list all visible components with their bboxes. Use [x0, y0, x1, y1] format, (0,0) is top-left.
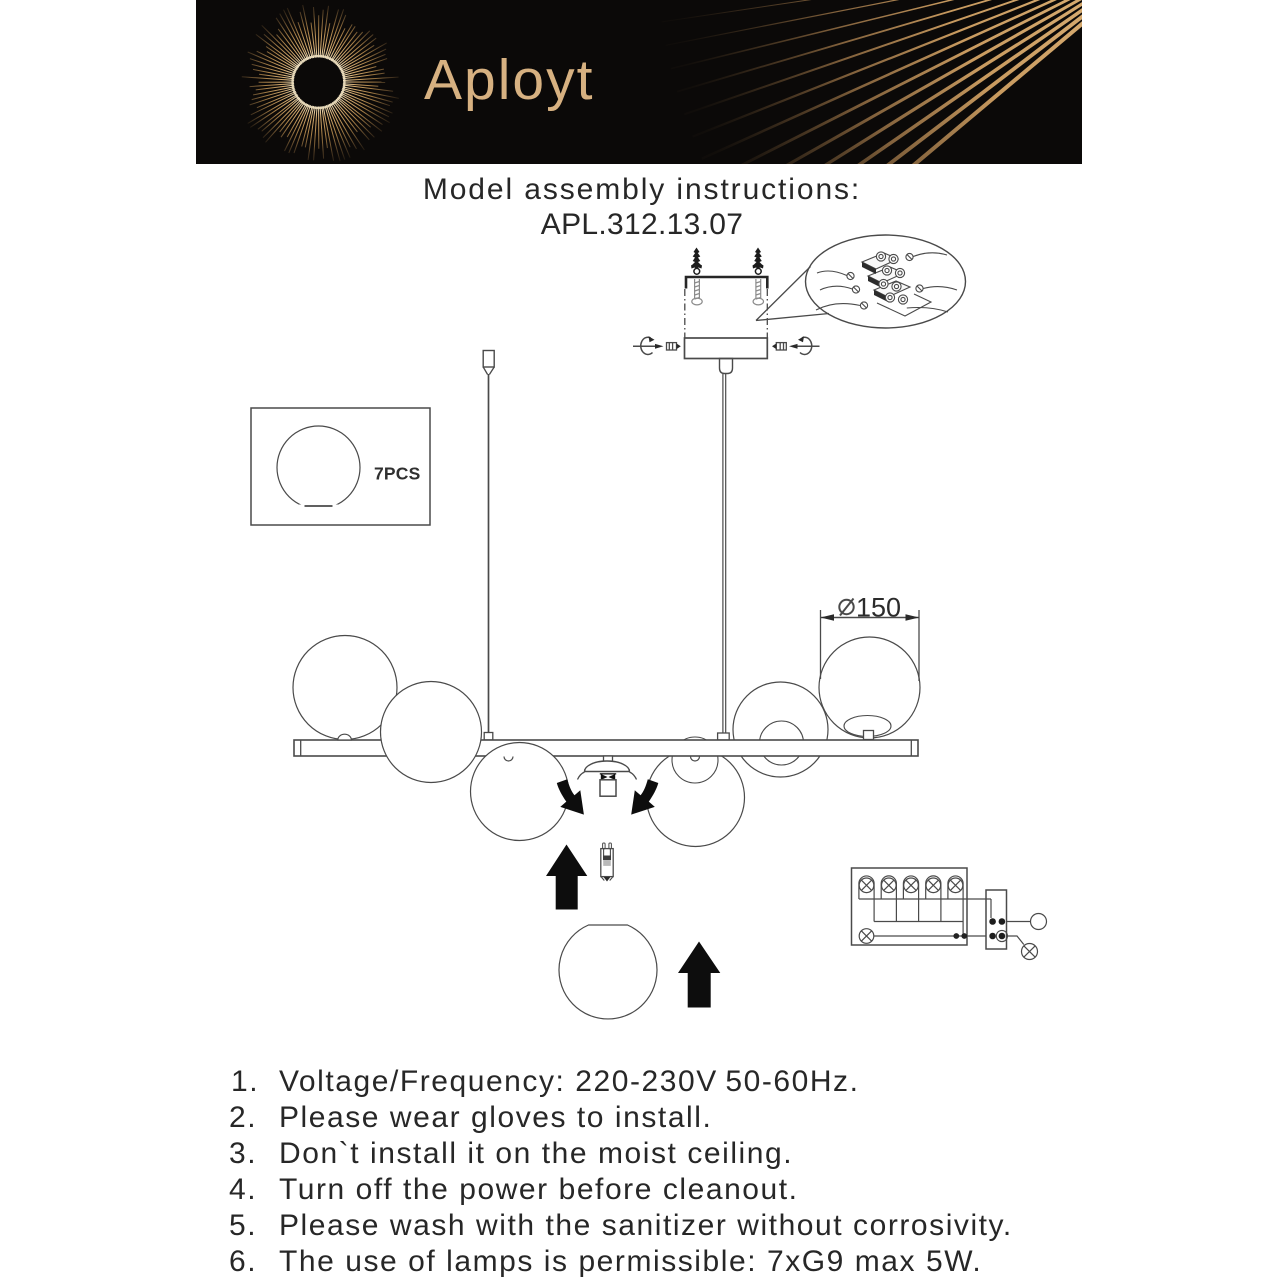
svg-text:150: 150 [856, 593, 901, 623]
svg-text:7PCS: 7PCS [374, 464, 421, 484]
